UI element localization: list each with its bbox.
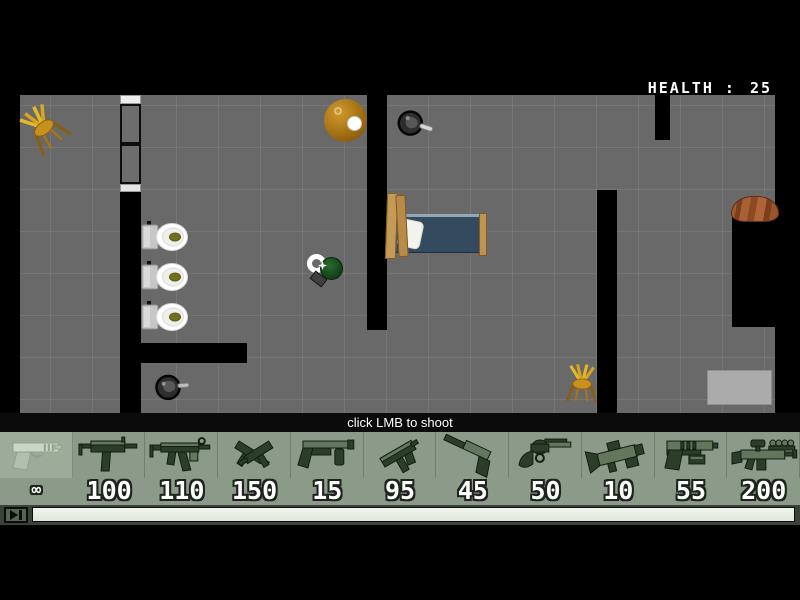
weapon-slot-dual-uzis[interactable] <box>218 432 291 478</box>
scoped-rifle-icon <box>727 432 799 478</box>
bed <box>383 192 493 262</box>
weapon-slot-machine-pistol[interactable] <box>364 432 437 478</box>
cup-icon <box>334 107 342 115</box>
bed-headboard <box>395 195 408 257</box>
player-character <box>320 257 343 280</box>
bed-footboard <box>479 213 487 256</box>
wall-right-block <box>732 217 775 327</box>
weapon-slot-grenade-launcher[interactable] <box>582 432 655 478</box>
weapon-slot-mp5[interactable] <box>145 432 218 478</box>
round-table <box>324 99 367 142</box>
door-frame-bottom <box>120 184 141 192</box>
door-panel <box>120 144 141 184</box>
weapon-slot-revolver[interactable] <box>509 432 582 478</box>
weapon-icon-row <box>0 432 800 478</box>
chair-icon <box>564 363 599 405</box>
toilet <box>141 301 189 333</box>
weapon-slot-shotgun[interactable] <box>291 432 364 478</box>
uzi-icon <box>73 432 145 478</box>
wall-top-stub <box>655 95 670 140</box>
frying-pan-icon <box>154 373 194 402</box>
toilet <box>141 261 189 293</box>
ammo-row: ∞ 100 110 150 15 95 45 50 10 55 200 <box>0 478 800 505</box>
desert-eagle-icon <box>0 432 72 478</box>
ammo-count: 100 <box>73 478 146 505</box>
weapon-bar: ∞ 100 110 150 15 95 45 50 10 55 200 <box>0 432 800 505</box>
ammo-count: ∞ <box>0 478 73 505</box>
steak-object <box>731 196 779 222</box>
laser-pistol-icon <box>655 432 727 478</box>
wall-left-vertical <box>120 192 141 413</box>
dual-uzis-icon <box>218 432 290 478</box>
ammo-count: 55 <box>655 478 728 505</box>
door-panel <box>120 104 141 144</box>
ammo-count: 15 <box>291 478 364 505</box>
silenced-pistol-icon <box>436 432 508 478</box>
weapon-slot-laser-pistol[interactable] <box>655 432 728 478</box>
toilet-icon <box>141 301 189 333</box>
ammo-count: 45 <box>436 478 509 505</box>
shotgun-icon <box>291 432 363 478</box>
grenade-launcher-icon <box>582 432 654 478</box>
health-value: 25 <box>750 80 772 96</box>
plate <box>347 116 362 131</box>
play-pause-button[interactable] <box>4 507 28 523</box>
ammo-count: 10 <box>582 478 655 505</box>
toilet <box>141 221 189 253</box>
game-stage: HEALTH : 25 <box>0 0 800 600</box>
weapon-slot-silenced-pistol[interactable] <box>436 432 509 478</box>
weapon-slot-desert-eagle[interactable] <box>0 432 73 478</box>
revolver-icon <box>509 432 581 478</box>
weapon-slot-uzi[interactable] <box>73 432 146 478</box>
toilet-icon <box>141 261 189 293</box>
wall-branch-horizontal <box>141 343 247 363</box>
ammo-count: 50 <box>509 478 582 505</box>
play-pause-icon <box>9 510 23 520</box>
weapon-slot-scoped-rifle[interactable] <box>727 432 800 478</box>
wall-right-vertical <box>597 190 617 413</box>
timeline-track[interactable] <box>32 507 795 522</box>
ammo-count: 95 <box>364 478 437 505</box>
door <box>120 95 141 192</box>
ammo-count: 150 <box>218 478 291 505</box>
mp5-icon <box>145 432 217 478</box>
ammo-count: 200 <box>727 478 800 505</box>
health-display: HEALTH : 25 <box>648 80 772 96</box>
door-frame-top <box>120 95 141 104</box>
machine-pistol-icon <box>364 432 436 478</box>
floor-mat <box>707 370 772 405</box>
ammo-count: 110 <box>145 478 218 505</box>
hint-text: click LMB to shoot <box>0 413 800 432</box>
health-label: HEALTH : <box>648 80 736 96</box>
timeline-scrubber[interactable] <box>0 505 800 525</box>
toilet-icon <box>141 221 189 253</box>
chair <box>564 363 599 405</box>
frying-pan-pickup <box>154 373 194 402</box>
